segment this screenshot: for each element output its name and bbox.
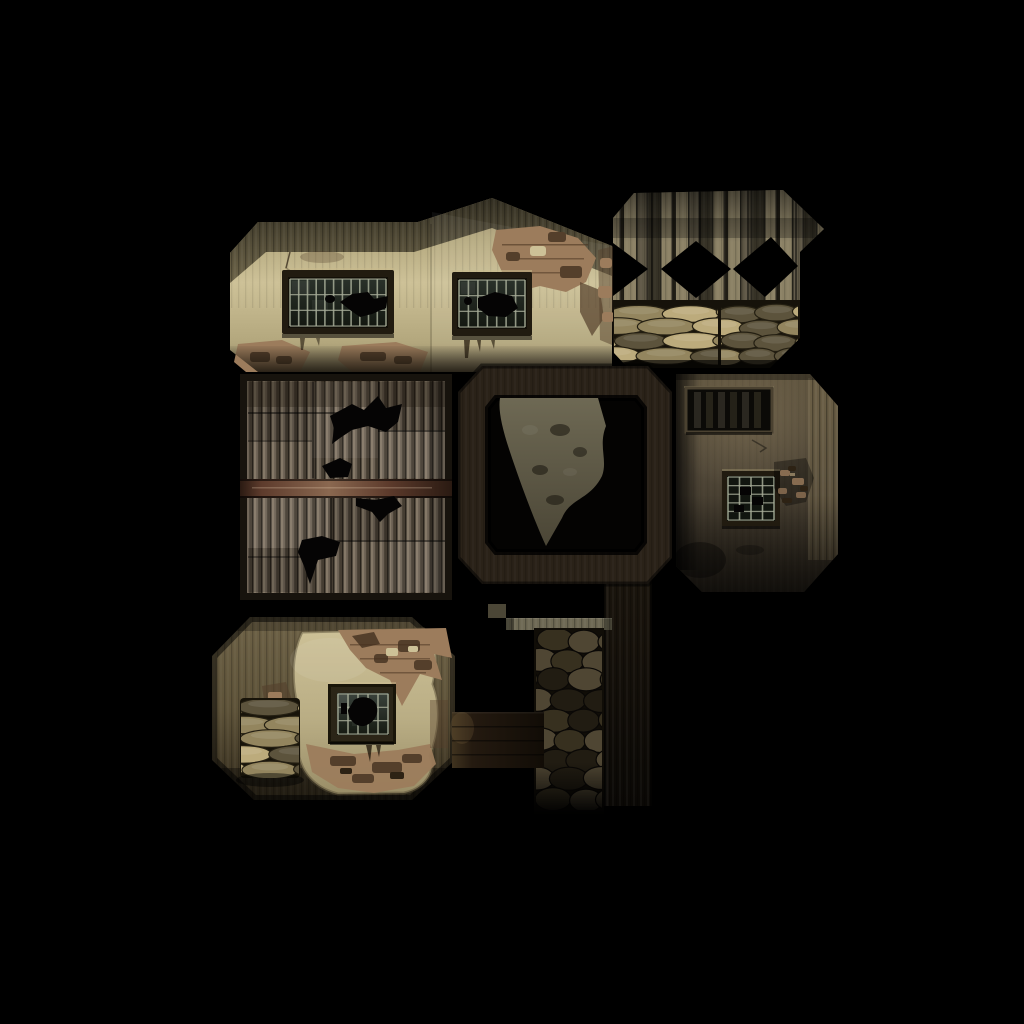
- barred-window-large-left: [282, 268, 394, 350]
- wooden-rail-beam: [240, 479, 452, 498]
- atlas-canvas: [0, 0, 1024, 1024]
- patch-lower-wall: [184, 615, 455, 800]
- patch-interior-wall: [663, 350, 838, 592]
- slatted-vent-window: [684, 386, 774, 435]
- patch-gabled-wall: [230, 198, 614, 374]
- lintel-step-block: [488, 604, 506, 618]
- timber-crossbar: [450, 712, 544, 768]
- texture-atlas-sheet: [0, 0, 1024, 1024]
- broken-pane: [740, 487, 751, 495]
- patch-corrugated-wall: [240, 374, 452, 600]
